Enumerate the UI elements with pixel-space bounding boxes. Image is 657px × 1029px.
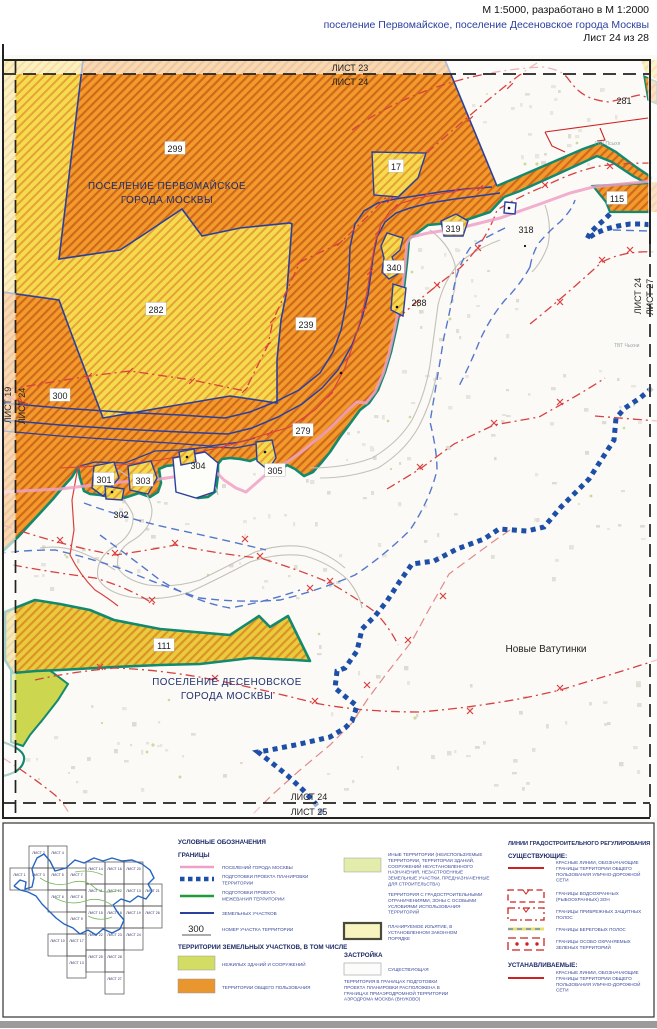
svg-text:ПОСЕЛЕНИЕ ДЕСЕНОВСКОЕ: ПОСЕЛЕНИЕ ДЕСЕНОВСКОЕ: [152, 677, 302, 688]
svg-text:17: 17: [391, 162, 401, 172]
svg-text:ГРАНИЦЫ: ГРАНИЦЫ: [178, 852, 210, 859]
svg-text:ЛИСТ 27: ЛИСТ 27: [645, 279, 655, 316]
svg-text:НОМЕР УЧАСТКА ТЕРРИТОРИИ: НОМЕР УЧАСТКА ТЕРРИТОРИИ: [222, 927, 293, 932]
svg-text:305: 305: [267, 466, 282, 476]
svg-text:ЛИСТ 19: ЛИСТ 19: [126, 911, 141, 915]
svg-text:ГРАНИЦЫ ПРИБРЕЖНЫХ ЗАЩИТНЫХ: ГРАНИЦЫ ПРИБРЕЖНЫХ ЗАЩИТНЫХ: [556, 909, 641, 914]
svg-text:ПОСЕЛЕНИЕ ПЕРВОМАЙСКОЕ: ПОСЕЛЕНИЕ ПЕРВОМАЙСКОЕ: [88, 180, 246, 192]
svg-text:ТВТ Чыхни: ТВТ Чыхни: [614, 343, 640, 349]
svg-text:239: 239: [298, 320, 313, 330]
svg-text:ЛИСТ 5: ЛИСТ 5: [51, 873, 64, 877]
svg-text:ЛИСТ 15: ЛИСТ 15: [88, 911, 103, 915]
svg-text:319: 319: [445, 224, 460, 234]
svg-text:СЕТИ: СЕТИ: [556, 988, 569, 993]
svg-text:300: 300: [52, 391, 67, 401]
svg-text:поселение Первомайское, поселе: поселение Первомайское, поселение Десено…: [324, 19, 649, 31]
svg-text:ЛИСТ 24: ЛИСТ 24: [126, 933, 141, 937]
svg-text:300: 300: [188, 924, 204, 935]
svg-text:ГРАНИЦЫ ТЕРРИТОРИИ ОБЩЕГО: ГРАНИЦЫ ТЕРРИТОРИИ ОБЩЕГО: [556, 976, 632, 981]
svg-text:ЗЕМЕЛЬНЫЕ УЧАСТКИ, ПРЕДНАЗНАЧЕ: ЗЕМЕЛЬНЫЕ УЧАСТКИ, ПРЕДНАЗНАЧЕННЫЕ: [388, 876, 490, 881]
svg-text:ЛИСТ 13: ЛИСТ 13: [126, 889, 141, 893]
svg-text:111: 111: [157, 641, 171, 651]
svg-text:ГБУ Псыхя: ГБУ Псыхя: [595, 141, 621, 147]
svg-text:302: 302: [113, 510, 128, 520]
svg-text:ЛИСТ 20: ЛИСТ 20: [126, 867, 141, 871]
svg-text:КРАСНЫЕ ЛИНИИ, ОБОЗНАЧАЮЩИЕ: КРАСНЫЕ ЛИНИИ, ОБОЗНАЧАЮЩИЕ: [556, 860, 639, 865]
svg-text:ЛИСТ 17: ЛИСТ 17: [69, 939, 84, 943]
svg-text:ЛИСТ 16: ЛИСТ 16: [107, 867, 122, 871]
svg-text:115: 115: [610, 194, 624, 204]
svg-text:СООРУЖЕНИЙ НЕУСТАНОВЛЕННОГО: СООРУЖЕНИЙ НЕУСТАНОВЛЕННОГО: [388, 862, 473, 869]
svg-text:301: 301: [96, 475, 111, 485]
svg-text:ГОРОДА МОСКВЫ: ГОРОДА МОСКВЫ: [181, 691, 273, 702]
svg-text:СЕТИ: СЕТИ: [556, 878, 569, 883]
svg-text:Лист 24 из 28: Лист 24 из 28: [583, 32, 649, 44]
svg-text:ПОДГОТОВКИ ПРОЕКТА: ПОДГОТОВКИ ПРОЕКТА: [222, 890, 276, 895]
svg-text:ТЕРРИТОРИИ: ТЕРРИТОРИИ: [222, 880, 253, 885]
svg-text:ПОЛЬЗОВАНИЯ УЛИЧНО-ДОРОЖНОЙ: ПОЛЬЗОВАНИЯ УЛИЧНО-ДОРОЖНОЙ: [556, 980, 640, 987]
svg-text:МЕЖЕВАНИЯ ТЕРРИТОРИИ: МЕЖЕВАНИЯ ТЕРРИТОРИИ: [222, 896, 285, 901]
svg-text:ЛИСТ 26: ЛИСТ 26: [145, 911, 160, 915]
svg-text:ТЕРРИТОРИИ ОБЩЕГО ПОЛЬЗОВАНИЯ: ТЕРРИТОРИИ ОБЩЕГО ПОЛЬЗОВАНИЯ: [222, 985, 310, 990]
svg-text:ЗЕЛЕНЫХ ТЕРРИТОРИЙ: ЗЕЛЕНЫХ ТЕРРИТОРИЙ: [556, 943, 611, 950]
svg-text:ПОДГОТОВКИ ПРОЕКТА ПЛАНИРОВКИ: ПОДГОТОВКИ ПРОЕКТА ПЛАНИРОВКИ: [222, 874, 308, 879]
svg-text:(РЫБООХРАННЫХ) ЗОН: (РЫБООХРАННЫХ) ЗОН: [556, 897, 610, 902]
svg-text:304: 304: [190, 461, 205, 471]
svg-text:М 1:5000, разработано в М 1:20: М 1:5000, разработано в М 1:2000: [482, 4, 649, 16]
svg-text:СУЩЕСТВУЮЩАЯ: СУЩЕСТВУЮЩАЯ: [388, 967, 429, 972]
svg-text:УСТАНОВЛЕННОМ ЗАКОННОМ: УСТАНОВЛЕННОМ ЗАКОННОМ: [388, 930, 457, 935]
svg-text:282: 282: [148, 305, 163, 315]
svg-text:АЭРОДРОМА МОСКВА (ВНУКОВО): АЭРОДРОМА МОСКВА (ВНУКОВО): [344, 997, 421, 1002]
svg-text:ГРАНИЦАХ ПРИАЭРОДРОМНОЙ ТЕРРИТ: ГРАНИЦАХ ПРИАЭРОДРОМНОЙ ТЕРРИТОРИИ: [344, 989, 448, 996]
svg-text:Новые Ватутинки: Новые Ватутинки: [506, 644, 587, 655]
svg-text:ЛИСТ 24: ЛИСТ 24: [633, 278, 643, 315]
svg-text:ТЕРРИТОРИЙ: ТЕРРИТОРИЙ: [388, 908, 419, 915]
svg-text:ЛИСТ 9: ЛИСТ 9: [70, 917, 83, 921]
svg-text:ОГРАНИЧЕНИЯМИ, ЗОНЫ С ОСОБЫМИ: ОГРАНИЧЕНИЯМИ, ЗОНЫ С ОСОБЫМИ: [388, 898, 476, 903]
svg-text:279: 279: [295, 426, 310, 436]
svg-text:ГРАНИЦЫ БЕРЕГОВЫХ ПОЛОС: ГРАНИЦЫ БЕРЕГОВЫХ ПОЛОС: [556, 927, 627, 932]
svg-text:ЛИСТ 24: ЛИСТ 24: [17, 388, 27, 425]
svg-text:ЛИСТ 27: ЛИСТ 27: [107, 977, 122, 981]
svg-text:УСЛОВНЫЕ ОБОЗНАЧЕНИЯ: УСЛОВНЫЕ ОБОЗНАЧЕНИЯ: [178, 839, 266, 846]
svg-text:ЛИСТ 13: ЛИСТ 13: [69, 961, 84, 965]
svg-text:ЛИСТ 25: ЛИСТ 25: [88, 955, 103, 959]
svg-text:ГОРОДА МОСКВЫ: ГОРОДА МОСКВЫ: [121, 195, 213, 206]
svg-text:ЛИСТ 6: ЛИСТ 6: [51, 895, 64, 899]
svg-text:КРАСНЫЕ ЛИНИИ, ОБОЗНАЧАЮЩИЕ: КРАСНЫЕ ЛИНИИ, ОБОЗНАЧАЮЩИЕ: [556, 970, 639, 975]
svg-text:303: 303: [135, 476, 150, 486]
svg-text:ЗАСТРОЙКА: ЗАСТРОЙКА: [344, 950, 383, 959]
svg-text:ЗЕМЕЛЬНЫХ УЧАСТКОВ: ЗЕМЕЛЬНЫХ УЧАСТКОВ: [222, 911, 277, 916]
svg-text:ЛИНИИ ГРАДОСТРОИТЕЛЬНОГО РЕГУЛ: ЛИНИИ ГРАДОСТРОИТЕЛЬНОГО РЕГУЛИРОВАНИЯ: [508, 841, 650, 847]
svg-text:ТЕРРИТОРИИ, ТЕРРИТОРИИ ЗДАНИЙ,: ТЕРРИТОРИИ, ТЕРРИТОРИИ ЗДАНИЙ,: [388, 856, 474, 863]
svg-text:ГРАНИЦЫ ВОДООХРАННЫХ: ГРАНИЦЫ ВОДООХРАННЫХ: [556, 891, 619, 896]
svg-text:288: 288: [411, 298, 426, 308]
svg-text:ЛИСТ 24: ЛИСТ 24: [291, 792, 328, 802]
svg-text:УСЛОВИЯМИ ИСПОЛЬЗОВАНИЯ: УСЛОВИЯМИ ИСПОЛЬЗОВАНИЯ: [388, 904, 460, 909]
svg-text:340: 340: [386, 263, 401, 273]
svg-text:ГРАНИЦЫ ТЕРРИТОРИИ ОБЩЕГО: ГРАНИЦЫ ТЕРРИТОРИИ ОБЩЕГО: [556, 866, 632, 871]
svg-text:ЛИСТ 25: ЛИСТ 25: [291, 807, 328, 817]
svg-text:318: 318: [518, 225, 533, 235]
svg-text:НЕЖИЛЫХ ЗДАНИЙ И СООРУЖЕНИЙ: НЕЖИЛЫХ ЗДАНИЙ И СООРУЖЕНИЙ: [222, 960, 306, 967]
svg-text:299: 299: [167, 144, 182, 154]
svg-text:ИНЫЕ ТЕРРИТОРИИ (НЕИСПОЛЬЗУЕМЫ: ИНЫЕ ТЕРРИТОРИИ (НЕИСПОЛЬЗУЕМЫЕ: [388, 852, 482, 857]
svg-text:ЛИСТ 14: ЛИСТ 14: [88, 867, 103, 871]
svg-text:281: 281: [616, 96, 631, 106]
svg-text:ТЕРРИТОРИЯ С ГРАДОСТРОИТЕЛЬНЫМ: ТЕРРИТОРИЯ С ГРАДОСТРОИТЕЛЬНЫМИ: [388, 892, 482, 897]
svg-text:ПОЛЬЗОВАНИЯ УЛИЧНО-ДОРОЖНОЙ: ПОЛЬЗОВАНИЯ УЛИЧНО-ДОРОЖНОЙ: [556, 870, 640, 877]
svg-text:ПОРЯДКЕ: ПОРЯДКЕ: [388, 936, 410, 941]
svg-text:ЛИСТ 23: ЛИСТ 23: [332, 63, 369, 73]
svg-text:ПОЛОС: ПОЛОС: [556, 915, 573, 920]
svg-text:ЛИСТ 23: ЛИСТ 23: [107, 933, 122, 937]
svg-text:ЛИСТ 24: ЛИСТ 24: [332, 77, 369, 87]
svg-text:ПОСЕЛЕНИЙ ГОРОДА МОСКВЫ: ПОСЕЛЕНИЙ ГОРОДА МОСКВЫ: [222, 863, 293, 870]
svg-text:ТЕРРИТОРИИ ЗЕМЕЛЬНЫХ УЧАСТКОВ,: ТЕРРИТОРИИ ЗЕМЕЛЬНЫХ УЧАСТКОВ, В ТОМ ЧИС…: [178, 944, 347, 951]
svg-text:ЛИСТ 28: ЛИСТ 28: [107, 955, 122, 959]
svg-text:НАЗНАЧЕНИЯ, НЕЗАСТРОЕННЫЕ: НАЗНАЧЕНИЯ, НЕЗАСТРОЕННЫЕ: [388, 870, 463, 875]
svg-text:ПЛАНИРУЕМОЕ ИЗЪЯТИЕ, В: ПЛАНИРУЕМОЕ ИЗЪЯТИЕ, В: [388, 924, 452, 929]
svg-text:ПРОЕКТА ПЛАНИРОВКИ РАСПОЛОЖЕНА: ПРОЕКТА ПЛАНИРОВКИ РАСПОЛОЖЕНА В: [344, 985, 440, 990]
svg-text:ЛИСТ 1: ЛИСТ 1: [13, 873, 26, 877]
svg-text:ДЛЯ СТРОИТЕЛЬСТВА): ДЛЯ СТРОИТЕЛЬСТВА): [388, 882, 440, 887]
svg-text:ЛИСТ 10: ЛИСТ 10: [50, 939, 65, 943]
svg-text:ЛИСТ 4: ЛИСТ 4: [51, 851, 64, 855]
svg-text:ЛИСТ 19: ЛИСТ 19: [3, 387, 13, 424]
svg-text:ТЕРРИТОРИЯ В ГРАНИЦАХ ПОДГОТОВ: ТЕРРИТОРИЯ В ГРАНИЦАХ ПОДГОТОВКИ: [344, 979, 437, 984]
svg-text:ГРАНИЦЫ ОСОБО ОХРАНЯЕМЫХ: ГРАНИЦЫ ОСОБО ОХРАНЯЕМЫХ: [556, 939, 631, 944]
svg-text:ЛИСТ 8: ЛИСТ 8: [70, 895, 83, 899]
svg-text:СУЩЕСТВУЮЩИЕ:: СУЩЕСТВУЮЩИЕ:: [508, 853, 567, 860]
svg-text:ЛИСТ 7: ЛИСТ 7: [70, 873, 83, 877]
svg-text:УСТАНАВЛИВАЕМЫЕ:: УСТАНАВЛИВАЕМЫЕ:: [508, 962, 577, 969]
